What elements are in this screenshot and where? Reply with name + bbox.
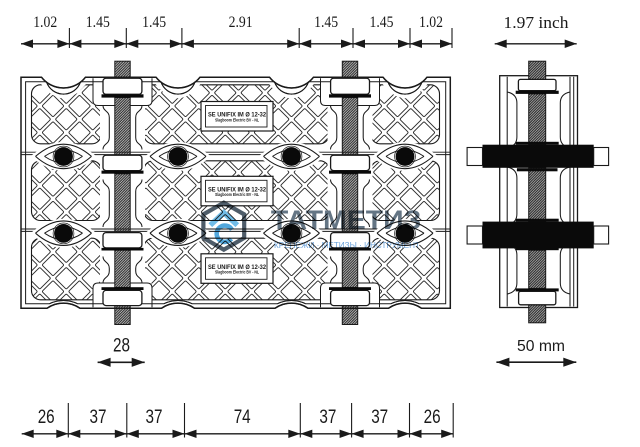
svg-text:37: 37 [371, 407, 388, 428]
svg-text:74: 74 [234, 407, 251, 428]
svg-text:1.45: 1.45 [142, 14, 166, 31]
svg-text:Slagboom Electric BV - NL: Slagboom Electric BV - NL [215, 270, 259, 275]
svg-text:50 mm: 50 mm [517, 338, 565, 355]
svg-text:ТАТМЕТИЗ: ТАТМЕТИЗ [271, 205, 422, 235]
svg-text:1.45: 1.45 [86, 14, 110, 31]
svg-text:28: 28 [113, 336, 130, 357]
svg-text:Slagboom Electric BV - NL: Slagboom Electric BV - NL [215, 192, 259, 197]
svg-text:37: 37 [90, 407, 107, 428]
svg-text:Slagboom Electric BV - NL: Slagboom Electric BV - NL [215, 117, 259, 122]
svg-text:1.45: 1.45 [314, 14, 338, 31]
svg-text:1.02: 1.02 [419, 14, 443, 31]
svg-text:2.91: 2.91 [229, 14, 253, 31]
svg-text:37: 37 [319, 407, 336, 428]
svg-text:1.45: 1.45 [370, 14, 394, 31]
svg-text:26: 26 [424, 407, 441, 428]
svg-text:1.97 inch: 1.97 inch [504, 13, 570, 32]
svg-text:1.02: 1.02 [33, 14, 57, 31]
svg-text:26: 26 [38, 407, 55, 428]
svg-text:КРЕПЕЖИ · МЕТИЗЫ · ИНСТРУМЕНТ: КРЕПЕЖИ · МЕТИЗЫ · ИНСТРУМЕНТ [274, 240, 420, 250]
svg-text:37: 37 [146, 407, 163, 428]
